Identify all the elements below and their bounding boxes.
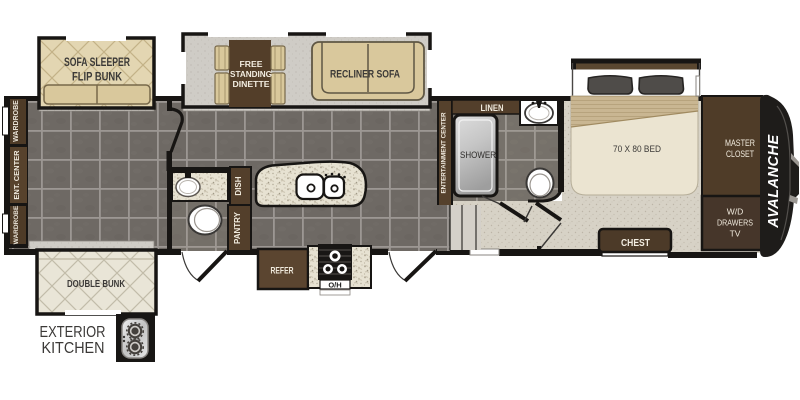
svg-text:REFER: REFER [271, 266, 294, 276]
svg-text:ENT. CENTER: ENT. CENTER [12, 150, 21, 200]
svg-text:70 X 80 BED: 70 X 80 BED [613, 144, 661, 155]
svg-text:WARDROBE: WARDROBE [13, 100, 20, 142]
svg-text:RECLINER SOFA: RECLINER SOFA [330, 69, 400, 81]
svg-text:DOUBLE BUNK: DOUBLE BUNK [67, 278, 125, 290]
svg-text:ENTERTAINMENT CENTER: ENTERTAINMENT CENTER [441, 112, 448, 193]
svg-text:TV: TV [730, 229, 741, 239]
svg-text:MASTER: MASTER [725, 138, 755, 148]
svg-text:PANTRY: PANTRY [233, 211, 242, 244]
svg-text:AVALANCHE: AVALANCHE [766, 133, 782, 228]
svg-text:CLOSET: CLOSET [726, 149, 754, 159]
svg-text:DISH: DISH [234, 176, 243, 195]
svg-text:FLIP BUNK: FLIP BUNK [72, 72, 123, 84]
svg-text:SOFA SLEEPER: SOFA SLEEPER [64, 57, 131, 69]
svg-text:STANDING: STANDING [230, 70, 272, 79]
svg-text:WARDROBE: WARDROBE [13, 205, 20, 244]
svg-text:LINEN: LINEN [481, 103, 504, 114]
svg-text:W/D: W/D [727, 207, 744, 217]
svg-text:KITCHEN: KITCHEN [42, 340, 105, 357]
svg-text:SHOWER: SHOWER [460, 150, 496, 160]
svg-text:CHEST: CHEST [621, 238, 650, 249]
svg-text:DINETTE: DINETTE [233, 80, 271, 89]
svg-text:O/H: O/H [328, 281, 341, 290]
svg-text:DRAWERS: DRAWERS [717, 218, 753, 228]
svg-text:EXTERIOR: EXTERIOR [40, 324, 106, 341]
svg-text:FREE: FREE [240, 60, 264, 69]
